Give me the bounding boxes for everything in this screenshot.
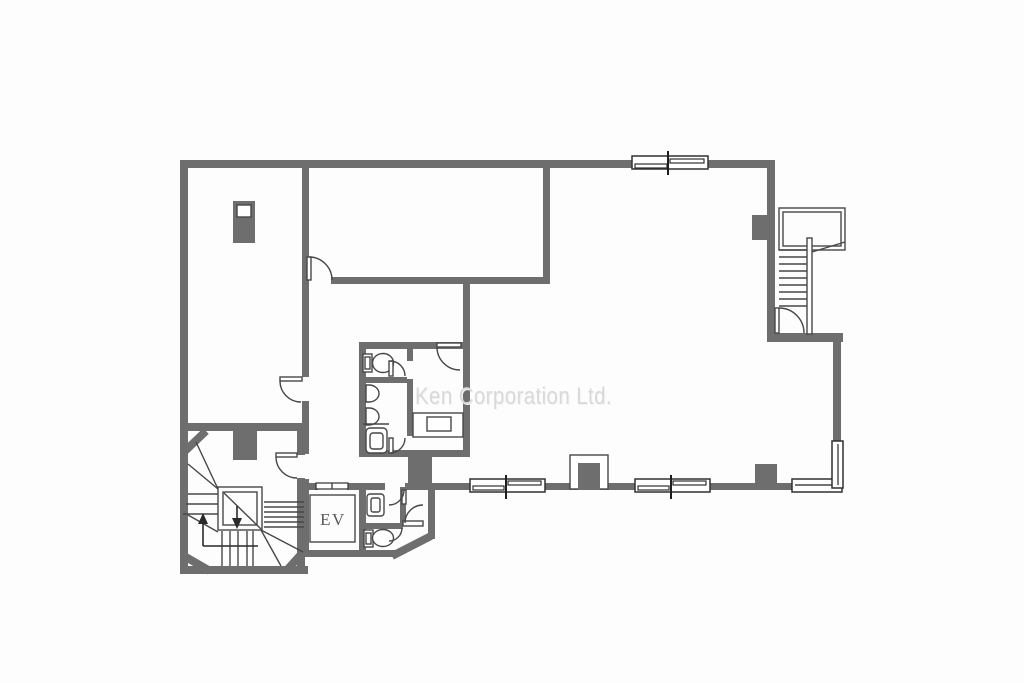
exterior-staircase xyxy=(775,208,845,334)
pillar xyxy=(233,431,257,460)
sliding-window-top xyxy=(632,151,708,175)
door-swing xyxy=(389,490,406,505)
elevator: EV xyxy=(310,483,355,542)
sink-counter xyxy=(413,413,463,437)
sliding-window-bottom-left xyxy=(470,475,545,499)
door-swing xyxy=(437,343,461,370)
duct-shaft xyxy=(233,201,255,243)
door-swing xyxy=(389,361,405,376)
stair-stringer xyxy=(807,238,812,334)
elevator-door xyxy=(316,483,348,489)
floor-plan-canvas: EV xyxy=(0,0,1024,683)
entrance-frame xyxy=(570,455,608,490)
corner-window xyxy=(792,441,843,492)
floor-plan-drawing: EV xyxy=(0,0,1024,683)
sliding-window-bottom-right xyxy=(635,475,710,499)
door-swing xyxy=(276,453,297,478)
windows xyxy=(470,151,843,499)
door-swing xyxy=(280,377,302,402)
pillar xyxy=(752,215,767,240)
urinal-icon xyxy=(366,385,379,402)
watermark-text: Ken Corporation Ltd. xyxy=(415,383,612,410)
elevator-label: EV xyxy=(320,510,346,529)
door-swing xyxy=(307,257,332,280)
door-swing xyxy=(775,308,804,333)
chamfer-wall xyxy=(392,536,431,556)
toilet-icon xyxy=(364,530,394,548)
urinal-icon xyxy=(366,408,379,425)
pillar xyxy=(755,464,777,483)
stairwell xyxy=(183,442,304,566)
washbasin-icon xyxy=(367,494,384,516)
pillar xyxy=(578,463,600,490)
washbasin-icon xyxy=(366,428,387,453)
